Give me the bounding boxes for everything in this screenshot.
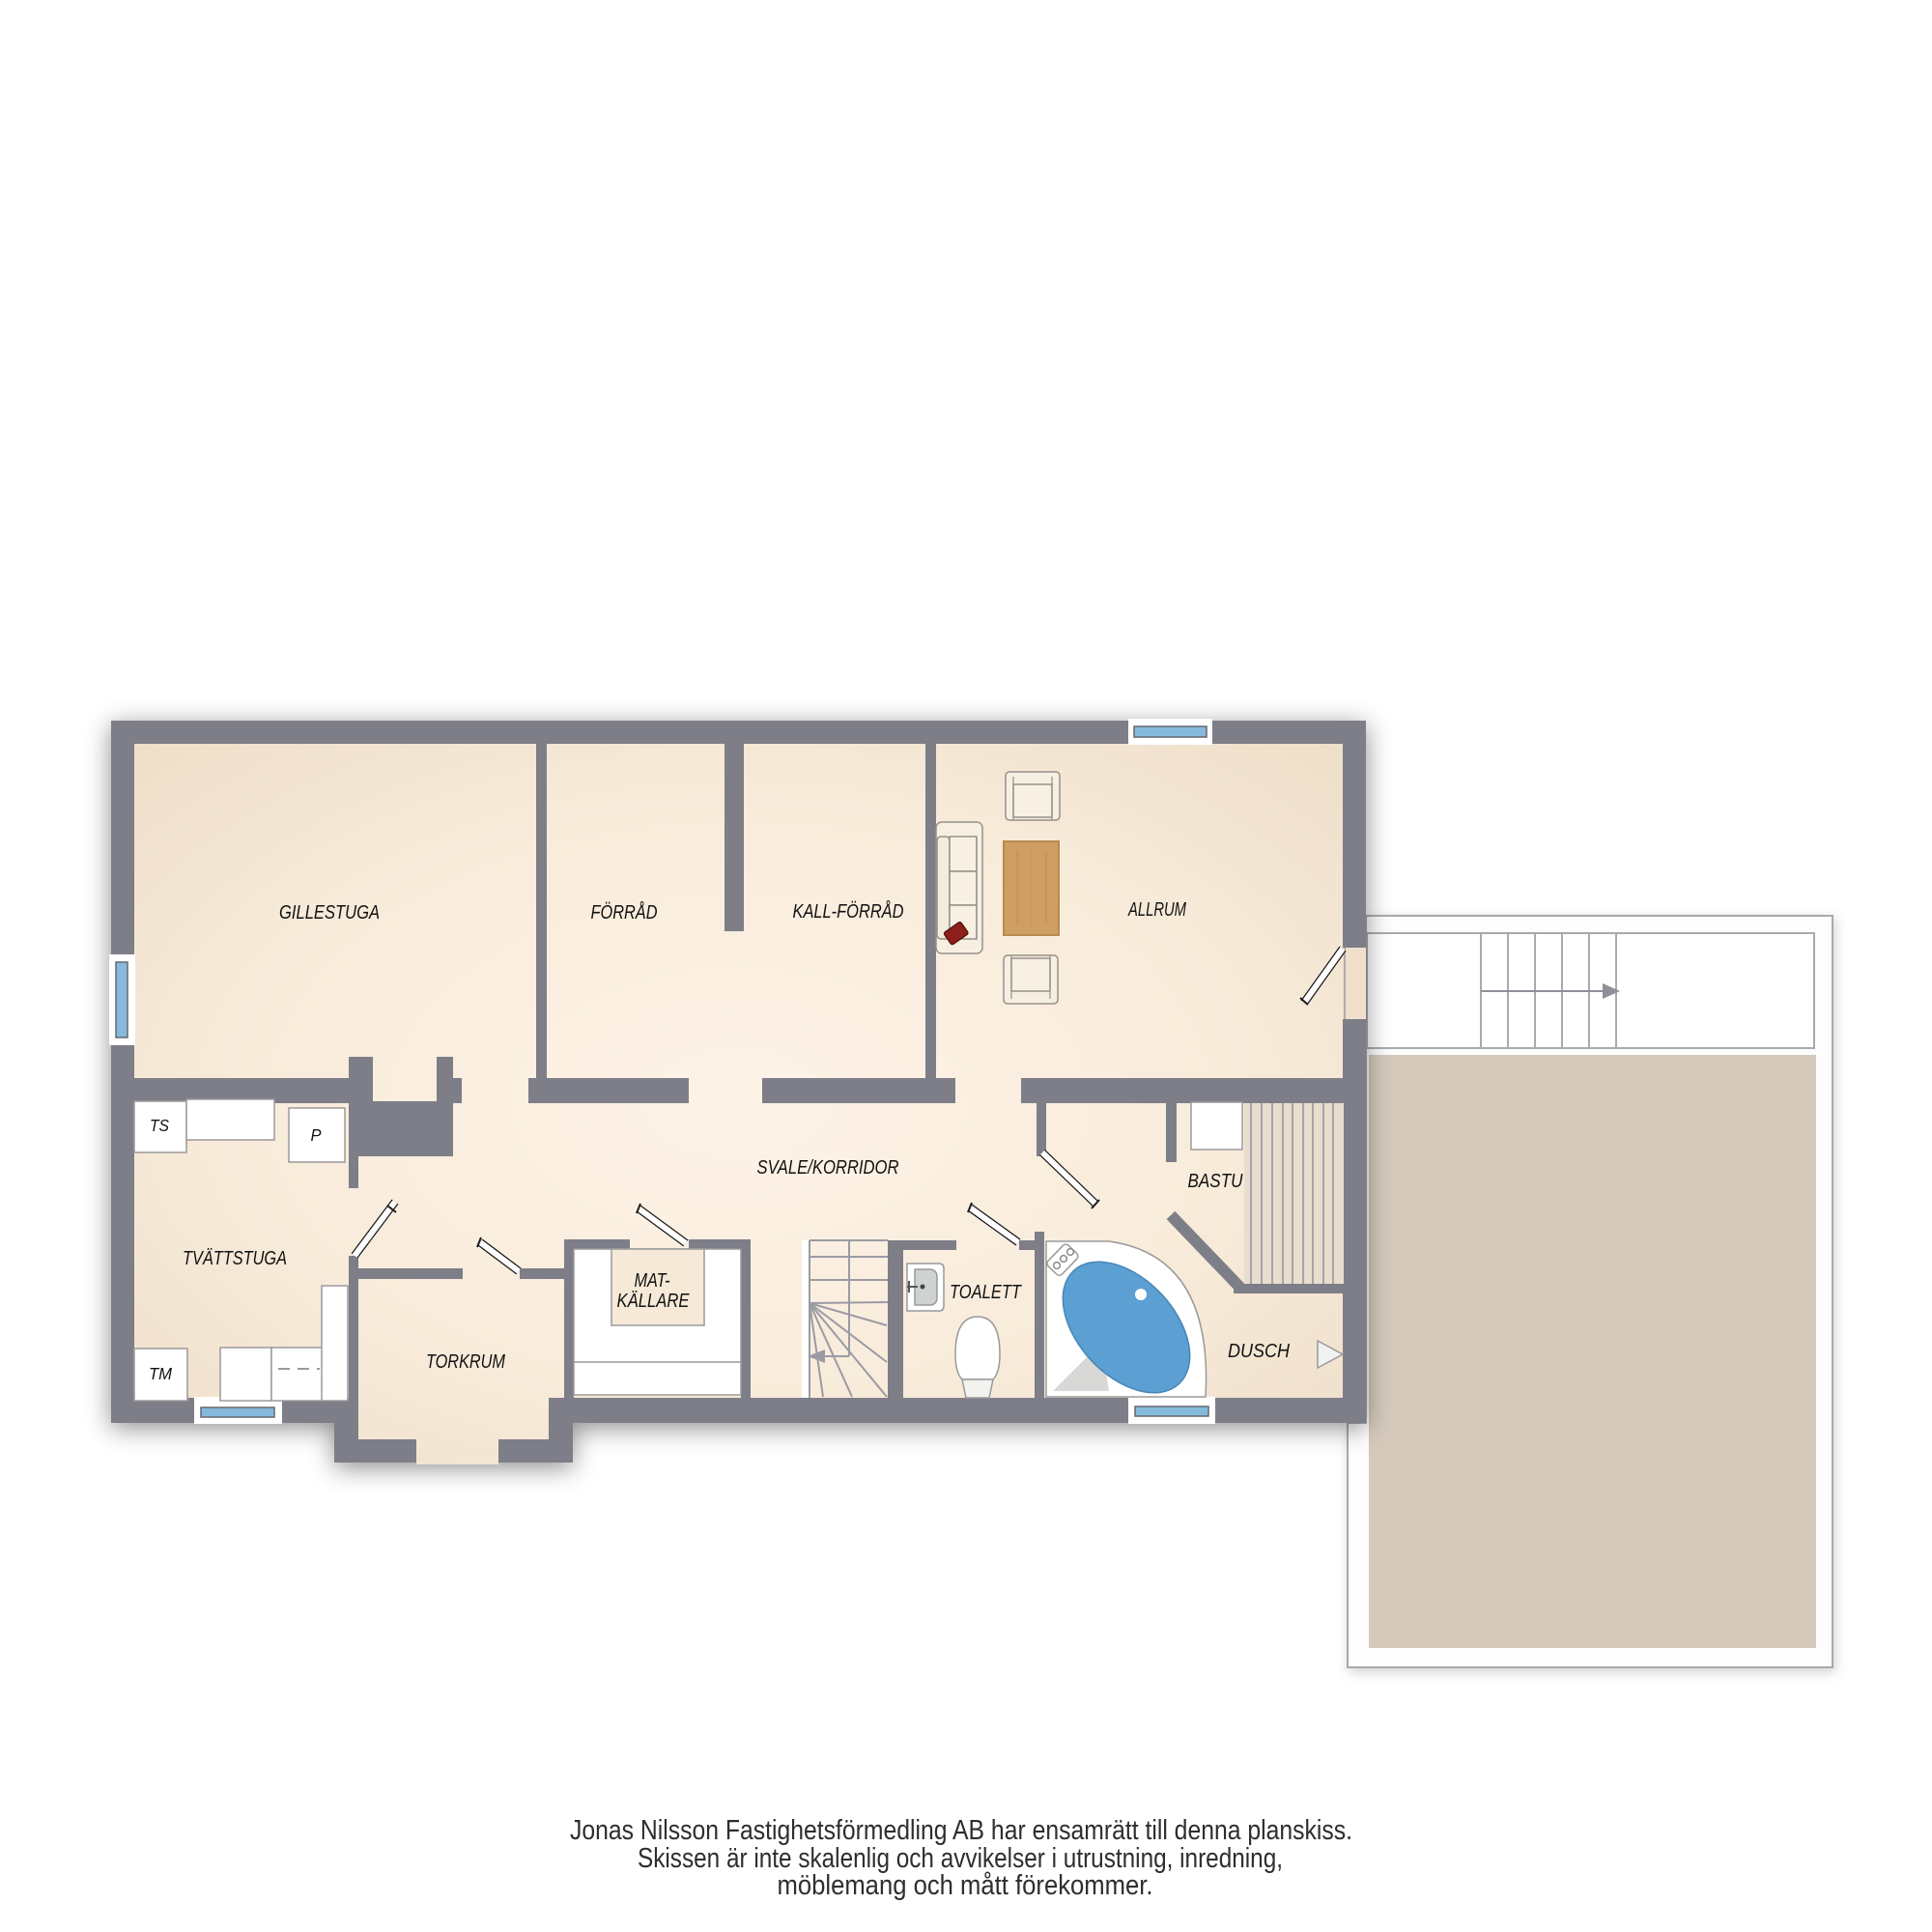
svg-text:TM: TM (149, 1364, 172, 1383)
svg-text:ALLRUM: ALLRUM (1127, 898, 1187, 921)
svg-text:KALL-FÖRRÅD: KALL-FÖRRÅD (793, 900, 904, 923)
svg-text:Jonas Nilsson Fastighetsförmed: Jonas Nilsson Fastighetsförmedling AB ha… (570, 1815, 1352, 1846)
svg-text:P: P (311, 1125, 322, 1145)
svg-text:DUSCH: DUSCH (1228, 1340, 1290, 1362)
svg-text:SVALE/KORRIDOR: SVALE/KORRIDOR (757, 1156, 899, 1179)
svg-text:MAT-: MAT- (635, 1269, 670, 1292)
svg-text:TOALETT: TOALETT (950, 1281, 1022, 1303)
svg-text:GILLESTUGA: GILLESTUGA (279, 901, 380, 923)
svg-text:KÄLLARE: KÄLLARE (617, 1290, 690, 1312)
svg-text:TS: TS (150, 1116, 169, 1135)
svg-text:TORKRUM: TORKRUM (426, 1350, 506, 1373)
svg-text:BASTU: BASTU (1188, 1170, 1243, 1192)
svg-text:TVÄTTSTUGA: TVÄTTSTUGA (183, 1247, 287, 1269)
svg-text:möblemang och mått förekommer.: möblemang och mått förekommer. (778, 1870, 1153, 1901)
svg-text:FÖRRÅD: FÖRRÅD (591, 901, 658, 923)
